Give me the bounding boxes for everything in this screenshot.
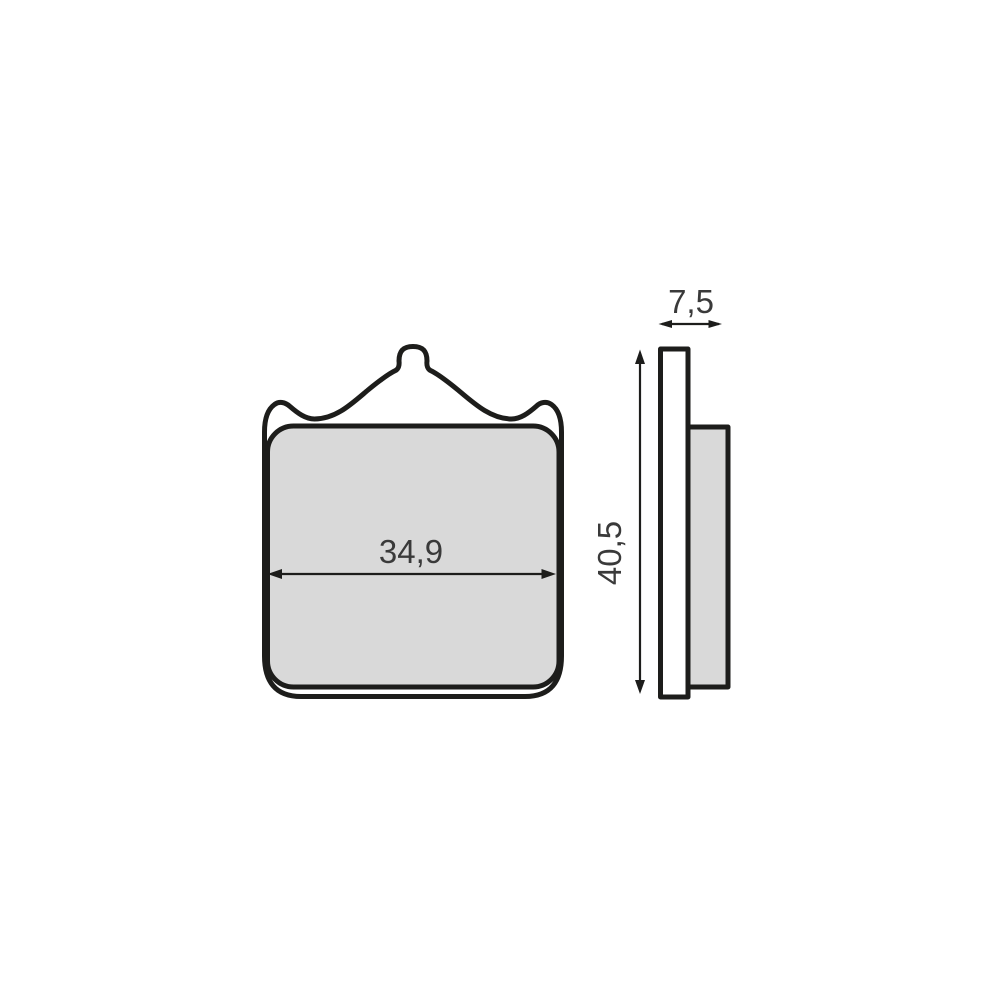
dim-side-thickness-label: 7,5: [668, 283, 714, 320]
dim-front-width-label: 34,9: [379, 533, 443, 570]
side-view: 7,5 40,5: [591, 283, 728, 697]
dim-side-thickness-arrow-left-icon: [659, 320, 673, 328]
side-backplate: [661, 349, 689, 697]
brake-pad-technical-drawing: 34,9 7,5 40,5: [0, 0, 1000, 1000]
drawing-canvas: 34,9 7,5 40,5: [0, 0, 1000, 1000]
dim-side-thickness: 7,5: [659, 283, 723, 328]
front-view: 34,9: [265, 347, 562, 697]
dim-side-height-label: 40,5: [591, 521, 628, 585]
dim-side-height-arrow-top-icon: [635, 350, 645, 365]
dim-side-height: 40,5: [591, 350, 645, 695]
dim-side-thickness-arrow-right-icon: [709, 320, 723, 328]
side-friction-pad: [686, 427, 728, 687]
dim-side-height-arrow-bottom-icon: [635, 680, 645, 694]
